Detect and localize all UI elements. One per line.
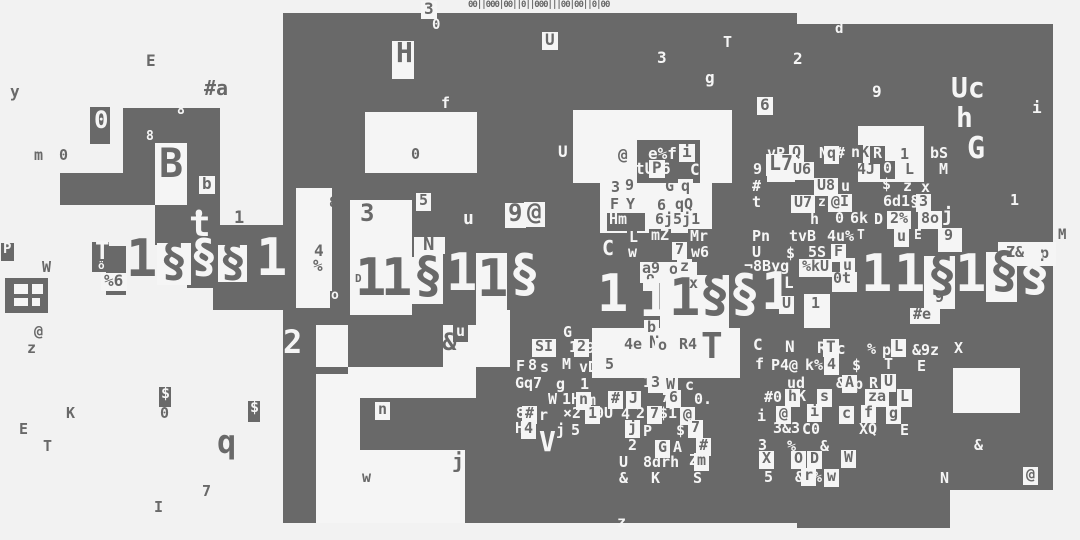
glyph-C: C (602, 238, 614, 258)
glyph-6k: 6k (850, 211, 868, 226)
glyph-B: B (159, 144, 183, 184)
glyph-§: § (413, 250, 443, 300)
glyph-7: 7 (675, 242, 684, 257)
glyph-Gq7: Gq7 (515, 376, 542, 391)
glyph-c: c (842, 406, 851, 421)
glyph-@: @ (618, 147, 628, 163)
glyph-D: D (810, 451, 819, 466)
glyph-m: m (697, 453, 706, 468)
glyph-@: @ (527, 200, 541, 224)
glyph-C0: C0 (802, 422, 820, 437)
glyph-1: 1 (669, 272, 700, 324)
glyph-×2: ×2 (563, 406, 581, 421)
glyph-Uc: Uc (951, 74, 985, 102)
glyph-R: R (873, 146, 882, 161)
glyph-1: 1 (955, 248, 986, 300)
glyph-4J: 4J (857, 162, 875, 177)
glyph-&9z: &9z (912, 343, 939, 358)
glyph-L: L (894, 339, 903, 354)
glyph-0: 0 (411, 147, 420, 162)
light-block (348, 367, 476, 398)
glyph-Pn: Pn (752, 229, 770, 244)
glyph-3: 3 (424, 1, 434, 17)
glyph-XQ: XQ (859, 422, 877, 437)
glyph-W: W (548, 392, 557, 407)
glyph-j: j (942, 206, 953, 225)
glyph-9: 9 (944, 228, 953, 243)
glyph-$1: $1 (659, 406, 677, 421)
light-block (32, 298, 40, 306)
glyph-r: r (804, 468, 813, 483)
glyph-L: L (905, 162, 914, 177)
glyph-w: w (362, 470, 371, 485)
glyph-&: & (442, 330, 456, 354)
glyph-8: 8 (528, 358, 537, 373)
glyph-4: 4 (524, 421, 533, 436)
glyph-i: i (682, 144, 692, 160)
glyph-g: g (889, 406, 898, 421)
glyph-c: c (836, 341, 846, 357)
glyph-h: h (788, 389, 797, 404)
glyph-6: 6 (661, 161, 671, 177)
glyph-0U: 0U (595, 406, 613, 421)
glyph-L: L (900, 389, 909, 404)
glyph-Hm: Hm (609, 212, 627, 227)
glyph-#: # (836, 146, 845, 161)
glyph-5: 5 (571, 423, 580, 438)
glyph-f: f (755, 357, 764, 372)
glyph-w: w (827, 469, 836, 484)
glyph-9: 9 (753, 162, 762, 177)
glyph-M: M (562, 357, 571, 372)
glyph-t: t (752, 195, 761, 210)
glyph-C: C (690, 162, 700, 178)
glyph-7: 7 (691, 420, 700, 435)
glyph-0.: 0. (694, 392, 712, 407)
glyph-j: j (628, 420, 637, 435)
glyph-E: E (19, 422, 28, 437)
glyph-Mr: Mr (690, 229, 708, 244)
glyph-z: z (818, 196, 826, 209)
glyph-i: i (1032, 100, 1042, 116)
glyph-f: f (864, 405, 873, 420)
glyph-s: s (820, 389, 829, 404)
glyph-0: 0 (94, 108, 108, 132)
glyph-2: 2 (283, 326, 302, 358)
glyph-bS: bS (930, 146, 948, 161)
glyph-4e: 4e (624, 337, 642, 352)
glyph-q: q (681, 179, 690, 194)
glyph-1: 1 (597, 268, 628, 320)
light-block (360, 450, 465, 523)
glyph-O2: O2 (659, 360, 677, 375)
glyph-@: @ (34, 324, 43, 339)
glyph-n: n (851, 145, 860, 160)
glyph-R4: R4 (679, 337, 697, 352)
glyph-9: 9 (508, 201, 522, 225)
glyph-i: i (757, 409, 766, 424)
glyph-S: S (693, 471, 702, 486)
glyph-i: i (810, 404, 819, 419)
glyph-$: $ (852, 358, 861, 373)
glyph-D: D (874, 212, 883, 227)
glyph-$: $ (250, 400, 259, 415)
glyph-mZ: mZ (651, 228, 669, 243)
glyph-§: § (729, 268, 760, 320)
glyph-1: 1 (126, 233, 157, 285)
glyph-6j5j1: 6j5j1 (655, 212, 700, 227)
glyph-4: 4 (827, 357, 836, 372)
glyph-J: J (684, 359, 693, 374)
glyph-h: h (956, 104, 973, 132)
light-block (316, 374, 360, 523)
glyph-7: 7 (650, 406, 659, 421)
glyph-A: A (845, 375, 854, 390)
glyph-3: 3 (657, 50, 667, 66)
glyph-%: % (867, 342, 876, 357)
glyph-n: n (378, 402, 387, 417)
glyph-1: 1 (477, 253, 508, 305)
glyph-U: U (619, 455, 628, 470)
top-strip: 00||000|00||0||000|||00|00||0|00 (468, 1, 609, 10)
glyph-q: q (217, 426, 236, 458)
glyph-z: z (27, 341, 36, 356)
glyph-o: o (658, 338, 667, 353)
glyph-p: p (854, 377, 863, 392)
glyph-N: N (940, 471, 949, 486)
light-block (365, 112, 477, 173)
glyph-v: v (579, 360, 588, 375)
glyph-q: q (827, 146, 836, 161)
glyph-8: 8 (329, 196, 337, 210)
glyph-SI: SI (535, 339, 553, 354)
glyph-T: T (723, 35, 732, 50)
glyph-7: 7 (202, 484, 211, 499)
glyph-N: N (785, 339, 795, 355)
glyph-U: U (545, 32, 555, 48)
glyph-L: L (784, 275, 794, 291)
glyph-8drh: 8drh (643, 455, 679, 470)
glyph-E: E (914, 229, 922, 242)
glyph-T: T (857, 229, 865, 242)
glyph-3: 3 (919, 194, 928, 209)
glyph-1: 1 (1010, 193, 1019, 208)
glyph-K: K (651, 471, 660, 486)
glyph-G: G (967, 134, 985, 164)
glyph-1: 1 (861, 248, 892, 300)
glyph-W: W (711, 108, 725, 132)
glyph-3&3: 3&3 (773, 421, 800, 436)
glyph-6d1: 6d1 (883, 194, 910, 209)
glyph-6: 6 (760, 97, 770, 113)
glyph-d: d (835, 22, 843, 36)
glyph-1: 1 (256, 232, 287, 284)
light-block (14, 284, 28, 294)
glyph-H: H (396, 39, 413, 67)
glyph-0: 0 (59, 148, 68, 163)
glyph-§: § (509, 248, 540, 300)
glyph-#e: #e (913, 307, 931, 322)
glyph-K: K (797, 389, 806, 404)
glyph-8: 8 (177, 104, 185, 117)
glyph-$: $ (161, 386, 170, 401)
glyph-1: 1 (894, 248, 925, 300)
glyph-r: r (539, 408, 548, 423)
glyph-X: X (762, 451, 771, 466)
glyph-%: % (313, 258, 323, 274)
glyph-W: W (844, 450, 853, 465)
glyph-0: 0 (432, 18, 440, 32)
glyph-W: W (42, 260, 51, 275)
glyph-F: F (834, 244, 843, 259)
glyph-2: 2 (628, 438, 637, 453)
glyph-%kU: %kU (802, 259, 829, 274)
glyph-K: K (860, 145, 869, 160)
glyph-I: I (154, 500, 163, 515)
dark-block (60, 173, 155, 205)
glyph-U: U (782, 296, 791, 311)
glyph-m: m (34, 148, 43, 163)
glyph-U6: U6 (793, 162, 811, 177)
glyph-5: 5 (605, 357, 614, 372)
glyph-0: 0 (835, 211, 844, 226)
glyph-@I: @I (831, 194, 849, 209)
glyph-s: s (540, 360, 549, 375)
glyph-9: 9 (935, 290, 944, 305)
glyph-&: & (619, 471, 628, 486)
glyph-9: 9 (625, 178, 634, 193)
glyph-o: o (331, 289, 339, 302)
light-block (32, 284, 43, 294)
glyph-g: g (705, 70, 715, 86)
glyph-§: § (1019, 247, 1050, 299)
glyph-$: $ (676, 423, 685, 438)
glyph-8o: 8o (921, 211, 939, 226)
glitch-canvas: yE#a088m0Bb8ot1Tö%61§§§14%oPW@zKET$0$q7I… (0, 0, 1080, 540)
glyph-U7: U7 (794, 195, 812, 210)
glyph-1: 1 (639, 273, 670, 325)
glyph-k%: k% (805, 358, 823, 373)
glyph-2: 2 (577, 339, 586, 354)
glyph-T: T (884, 357, 893, 372)
glyph-¬8Byg: ¬8Byg (744, 259, 789, 274)
glyph-E: E (917, 359, 926, 374)
glyph-c: c (685, 378, 694, 393)
glyph-0t: 0t (833, 271, 851, 286)
glyph-6: 6 (669, 390, 678, 405)
glyph-h: h (810, 212, 819, 227)
glyph-f: f (441, 96, 450, 111)
glyph-y: y (10, 84, 20, 100)
glyph-3: 3 (651, 375, 660, 390)
glyph-j: j (452, 451, 464, 471)
glyph-D: D (588, 360, 597, 375)
glyph-za: za (868, 389, 886, 404)
glyph-@: @ (1026, 467, 1035, 482)
glyph-G: G (665, 179, 674, 194)
glyph-E: E (900, 423, 909, 438)
glyph-9: 9 (872, 84, 882, 100)
glyph-5: 5 (764, 470, 773, 485)
glyph-ö: ö (98, 260, 105, 271)
glyph-w6: w6 (691, 245, 709, 260)
glyph-§: § (160, 237, 188, 283)
glyph-T: T (43, 439, 52, 454)
light-block (14, 298, 28, 306)
glyph-$: $ (882, 177, 891, 192)
glyph-P: P (3, 242, 11, 256)
glyph-u: u (456, 324, 465, 339)
glyph-&: & (974, 438, 983, 453)
glyph-%: % (813, 470, 822, 485)
glyph-#a: #a (204, 78, 228, 98)
glyph-1: 1 (381, 252, 412, 304)
glyph-§: § (190, 233, 218, 279)
glyph-K: K (66, 406, 75, 421)
glyph-z: z (617, 515, 626, 530)
light-block (316, 325, 348, 367)
glyph-%6: %6 (104, 273, 123, 289)
glyph-3: 3 (360, 201, 374, 225)
glyph-V: V (539, 428, 556, 456)
glyph-M: M (939, 162, 948, 177)
glyph-3: 3 (611, 180, 620, 195)
glyph-§: § (699, 268, 730, 320)
dark-block (797, 490, 950, 528)
glyph-0: 0 (883, 161, 892, 176)
glyph-E: E (146, 53, 156, 69)
glyph-T: T (826, 339, 836, 355)
glyph-2%: 2% (890, 211, 908, 226)
glyph-b: b (202, 176, 212, 192)
glyph-F: F (516, 359, 525, 374)
glyph-#0: #0 (764, 390, 782, 405)
glyph-U8: U8 (817, 178, 835, 193)
glyph-u: u (897, 229, 906, 244)
glyph-0: 0 (160, 406, 169, 421)
glyph-P4@: P4@ (771, 358, 798, 373)
glyph-2: 2 (636, 406, 645, 421)
glyph-w: w (628, 245, 637, 260)
glyph-O: O (794, 451, 803, 466)
glyph-8: 8 (146, 130, 154, 143)
glyph-2: 2 (793, 51, 803, 67)
glyph-9: 9 (586, 341, 595, 356)
glyph-C: C (753, 337, 763, 353)
glyph-u: u (463, 210, 474, 228)
glyph-Y: Y (626, 197, 635, 212)
glyph-1: 1 (811, 296, 820, 311)
glyph-T: T (701, 329, 723, 365)
glyph-#: # (752, 179, 761, 194)
glyph-5: 5 (419, 193, 428, 208)
glyph-j: j (556, 423, 565, 438)
glyph-M: M (1058, 228, 1066, 242)
light-block (953, 368, 1020, 413)
glyph-1: 1 (446, 247, 477, 299)
glyph-§: § (989, 245, 1019, 295)
glyph-X: X (954, 341, 963, 356)
glyph-P: P (643, 424, 652, 439)
glyph-tvB: tvB (789, 229, 816, 244)
glyph-1: 1 (234, 210, 244, 227)
dark-block (123, 142, 155, 173)
glyph-U: U (558, 144, 568, 160)
glyph-§: § (219, 237, 247, 283)
